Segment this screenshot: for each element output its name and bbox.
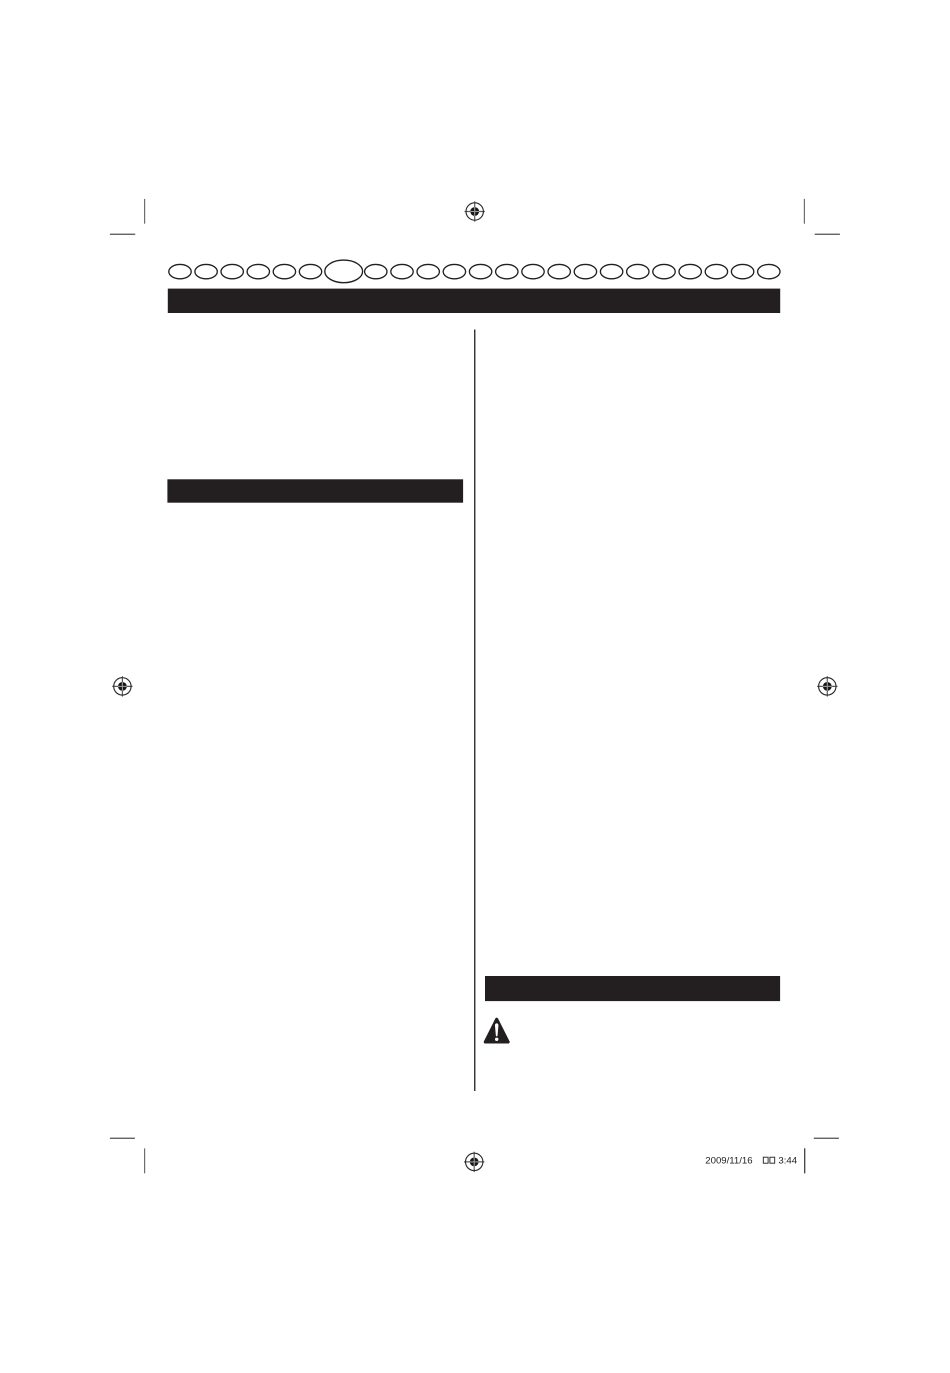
svg-text:2009/11/16: 2009/11/16 — [705, 1156, 752, 1167]
svg-text:3:44: 3:44 — [778, 1156, 797, 1167]
